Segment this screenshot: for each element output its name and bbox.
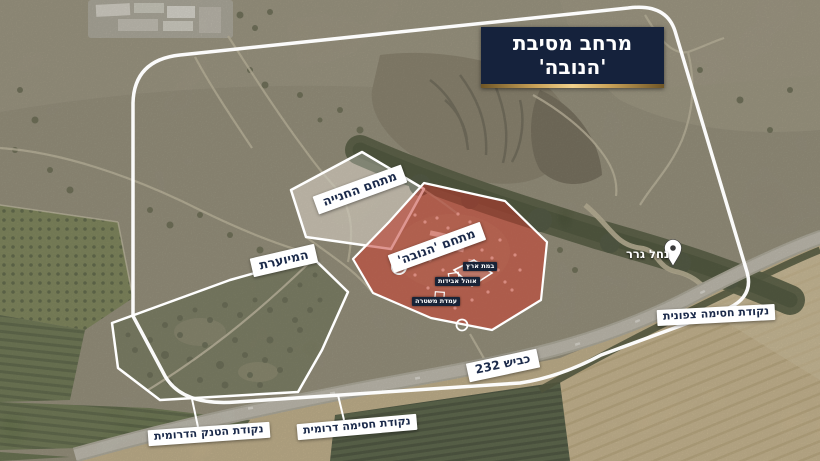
label-nahal-gerar: נחל גרר [626,247,669,261]
title-banner: מרחב מסיבת 'הנובה' [481,27,664,88]
label-police-post: עמדת משטרה [412,297,460,306]
gold-underline [481,84,664,88]
label-stage: במת ארץ [463,262,497,271]
nova-festival-map: מרחב מסיבת 'הנובה' מתחם החנייה מתחם 'הנו… [0,0,820,461]
label-lost-and-found: אוהל אבידות [435,277,480,286]
page-title: מרחב מסיבת 'הנובה' [481,27,664,84]
satellite-basemap [0,0,820,461]
